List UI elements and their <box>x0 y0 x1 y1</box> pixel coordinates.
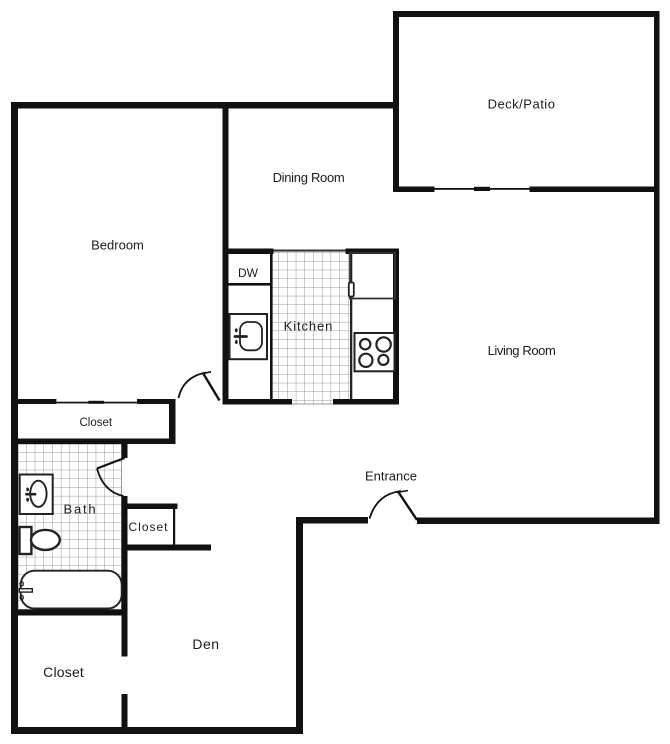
svg-text:Closet: Closet <box>79 417 112 429</box>
svg-text:Living Room: Living Room <box>488 343 556 358</box>
svg-text:Kitchen: Kitchen <box>284 319 334 334</box>
svg-text:Closet: Closet <box>43 664 84 680</box>
svg-text:Entrance: Entrance <box>365 469 417 484</box>
svg-text:Bath: Bath <box>64 502 98 517</box>
svg-text:Dining Room: Dining Room <box>273 170 345 185</box>
svg-text:Den: Den <box>192 636 219 652</box>
svg-text:Bedroom: Bedroom <box>91 238 144 253</box>
svg-text:Deck/Patio: Deck/Patio <box>488 97 556 112</box>
svg-text:Closet: Closet <box>128 520 168 534</box>
svg-text:DW: DW <box>238 266 259 280</box>
